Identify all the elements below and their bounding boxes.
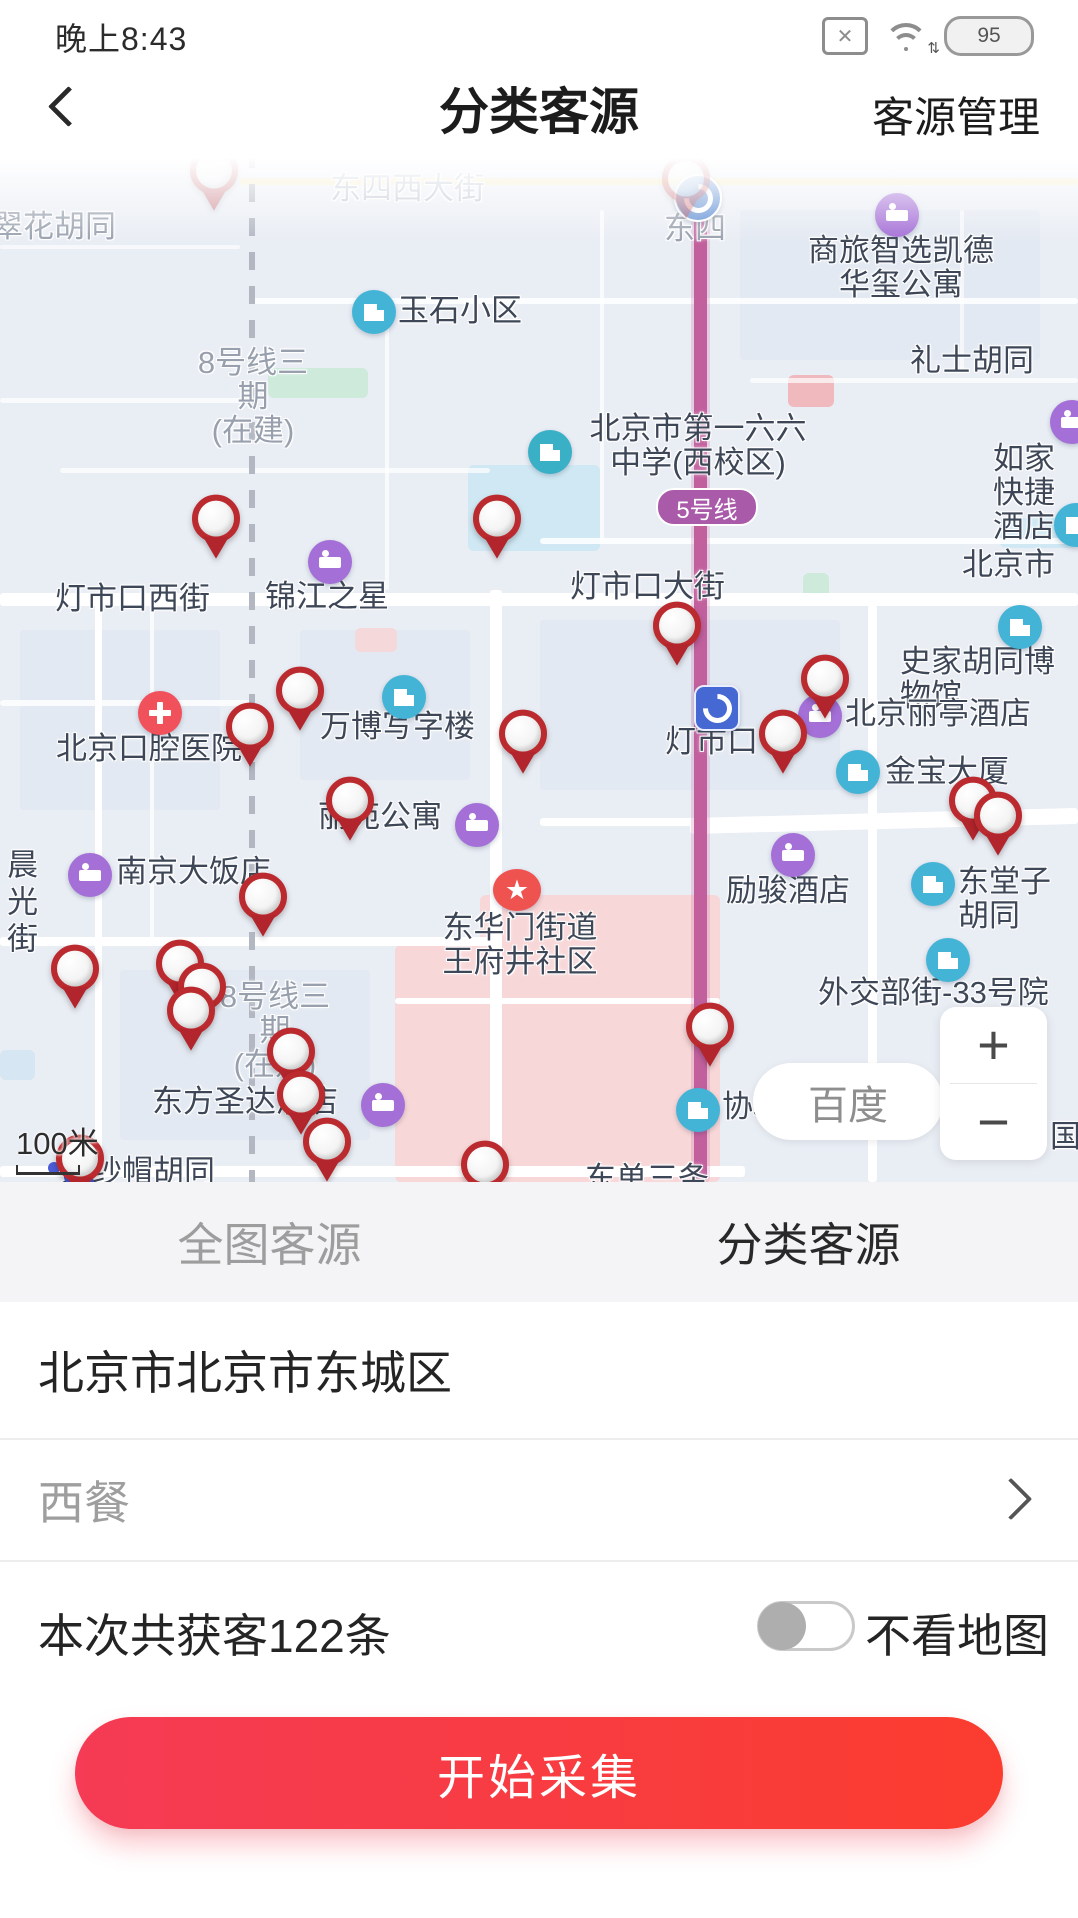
divider xyxy=(0,1438,1078,1440)
museum-glyph xyxy=(1010,619,1023,636)
museum-icon xyxy=(998,605,1042,649)
bldg-glyph xyxy=(938,952,951,969)
customer-pin[interactable] xyxy=(51,945,99,1022)
road xyxy=(60,468,490,473)
region-row[interactable]: 北京市北京市东城区 xyxy=(0,1302,1078,1438)
zoom-in-button[interactable]: + xyxy=(940,1007,1047,1083)
status-icons: ✕ ⇅ 95 xyxy=(822,16,1034,56)
customer-pin[interactable] xyxy=(759,710,807,787)
map-label: 灯市口西街 xyxy=(55,582,210,616)
map-label: 锦江之星 xyxy=(265,580,389,614)
zoom-out-button[interactable]: − xyxy=(940,1084,1047,1160)
customer-pin[interactable] xyxy=(192,495,240,572)
customer-pin[interactable] xyxy=(239,873,287,950)
customer-pin[interactable] xyxy=(653,602,701,679)
category-row[interactable]: 西餐 xyxy=(0,1440,1078,1560)
customer-pin[interactable] xyxy=(801,655,849,732)
customer-pin[interactable] xyxy=(190,150,238,224)
wifi-icon: ⇅ xyxy=(884,19,928,53)
source-tabs: 全图客源分类客源 xyxy=(0,1182,1078,1302)
map-label: 北京市第一六六 中学(西校区) xyxy=(576,412,820,480)
customer-pin[interactable] xyxy=(461,1141,509,1182)
building-icon xyxy=(926,938,970,982)
map[interactable]: 5号线 100米 百度 + − 东四西大街翠花胡同东四商旅智选凯德 华玺公寓玉石… xyxy=(0,150,1078,1182)
map-label: 东华门街道 王府井社区 xyxy=(428,911,612,979)
result-row: 本次共获客122条 不看地图 xyxy=(0,1562,1078,1704)
hospital-icon xyxy=(138,691,182,735)
hospital-glyph xyxy=(148,701,172,725)
map-scale: 100米 xyxy=(16,1118,99,1175)
bldg-glyph xyxy=(394,689,407,706)
bldg-glyph xyxy=(848,764,861,781)
map-label: 东四西大街 xyxy=(330,172,485,206)
scale-bar xyxy=(16,1165,80,1175)
chevron-right-icon xyxy=(990,1478,1032,1520)
map-label: 外交部街-33号院 xyxy=(818,976,1049,1010)
road xyxy=(750,378,1078,383)
map-label: 北京市 xyxy=(962,548,1055,582)
tab-full-map-sources[interactable]: 全图客源 xyxy=(0,1182,539,1302)
map-label: 北京口腔医院 xyxy=(56,732,242,766)
building-icon xyxy=(911,862,955,906)
customer-pin[interactable] xyxy=(662,155,710,232)
map-block xyxy=(20,630,220,810)
residential-icon xyxy=(352,290,396,334)
customer-pin[interactable] xyxy=(686,1003,734,1080)
header: 分类客源 客源管理 xyxy=(0,62,1078,150)
school-icon xyxy=(528,430,572,474)
bldg-glyph xyxy=(688,1102,701,1119)
hotel-icon xyxy=(1050,400,1078,444)
hotel-icon xyxy=(455,803,499,847)
star-glyph: ★ xyxy=(505,877,529,904)
map-label: 晨光街 xyxy=(2,848,36,959)
hide-map-label: 不看地图 xyxy=(865,1562,1049,1704)
battery-icon: 95 xyxy=(944,16,1034,56)
tab-classified-sources[interactable]: 分类客源 xyxy=(539,1182,1078,1302)
map-label: 东堂子胡同 xyxy=(958,865,1078,933)
customer-pin[interactable] xyxy=(326,777,374,854)
map-label: 灯市口大街 xyxy=(570,570,725,604)
map-label: 东单三条 xyxy=(585,1162,709,1182)
building-area xyxy=(355,628,397,652)
hotel-icon xyxy=(68,853,112,897)
map-label: 北京丽亭酒店 xyxy=(845,697,1031,731)
building-icon xyxy=(836,750,880,794)
bldg-glyph xyxy=(1066,517,1078,534)
hotel-icon xyxy=(875,193,919,237)
road xyxy=(385,300,389,590)
map-label: 励骏酒店 xyxy=(726,874,850,908)
customer-pin[interactable] xyxy=(303,1118,351,1182)
divider xyxy=(0,1560,1078,1562)
map-label: 礼士胡同 xyxy=(910,344,1034,378)
hotel-glyph xyxy=(1061,417,1078,428)
bldg-glyph xyxy=(923,876,936,893)
category-value: 西餐 xyxy=(38,1440,130,1560)
hospital-building-icon xyxy=(676,1088,720,1132)
result-count: 本次共获客122条 xyxy=(38,1562,391,1704)
district-area xyxy=(395,945,720,1182)
bldg-glyph xyxy=(364,304,377,321)
hotel-glyph xyxy=(372,1100,394,1111)
hotel-glyph xyxy=(319,557,341,568)
road xyxy=(540,818,700,826)
zoom-panel: + − xyxy=(940,1007,1047,1160)
toggle-knob xyxy=(758,1602,806,1650)
hotel-glyph xyxy=(79,870,101,881)
road xyxy=(0,245,240,249)
road xyxy=(600,210,604,540)
road xyxy=(0,700,255,706)
school-glyph xyxy=(540,444,553,461)
district-star-icon: ★ xyxy=(493,869,541,911)
hotel-glyph xyxy=(782,850,804,861)
hotel-icon xyxy=(361,1083,405,1127)
office-icon xyxy=(382,675,426,719)
metro-dengshikou-icon xyxy=(694,685,740,731)
customer-pin[interactable] xyxy=(226,703,274,780)
manage-sources-link[interactable]: 客源管理 xyxy=(872,84,1040,145)
hide-map-toggle[interactable] xyxy=(757,1601,855,1651)
metro-line5-badge: 5号线 xyxy=(656,488,758,526)
clock: 晚上8:43 xyxy=(55,14,187,60)
baidu-logo: 百度 xyxy=(753,1063,943,1140)
map-label: 8号线三期 (在建) xyxy=(186,346,320,448)
customer-pin[interactable] xyxy=(473,495,521,572)
map-label: 国 xyxy=(1050,1120,1078,1154)
customer-pin[interactable] xyxy=(276,667,324,744)
status-bar: 晚上8:43 ✕ ⇅ 95 xyxy=(0,0,1078,62)
customer-pin[interactable] xyxy=(167,987,215,1064)
map-label: 翠花胡同 xyxy=(0,210,116,244)
hotel-icon xyxy=(308,540,352,584)
region-value: 北京市北京市东城区 xyxy=(38,1302,452,1438)
start-collect-button[interactable]: 开始采集 xyxy=(75,1717,1003,1829)
hotel-glyph xyxy=(466,820,488,831)
metrosq-glyph xyxy=(696,687,737,728)
map-label: 玉石小区 xyxy=(398,294,522,328)
road xyxy=(395,998,720,1004)
water-area xyxy=(0,1050,35,1080)
customer-pin[interactable] xyxy=(499,710,547,787)
hotel-glyph xyxy=(886,210,908,221)
sim-x-icon: ✕ xyxy=(822,17,868,55)
customer-pin[interactable] xyxy=(974,792,1022,869)
hotel-icon xyxy=(771,833,815,877)
map-label: 商旅智选凯德 华玺公寓 xyxy=(793,234,1009,302)
